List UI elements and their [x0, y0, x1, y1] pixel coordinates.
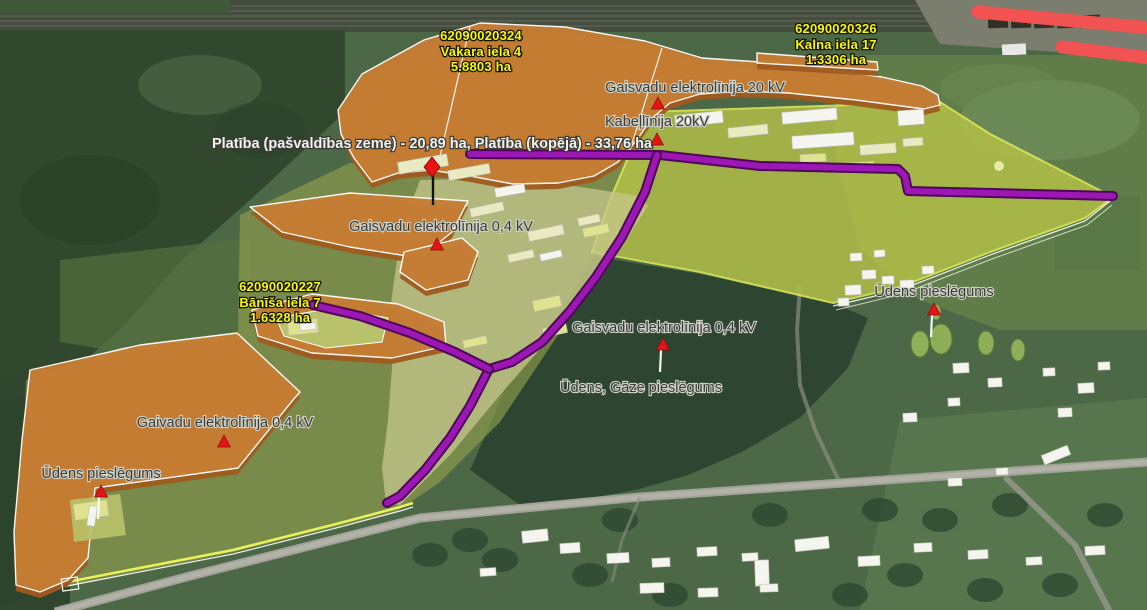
building: [922, 266, 934, 275]
label-udens-pieslegums-right: Ūdens pieslēgums: [874, 284, 993, 300]
tree-3d: [978, 331, 994, 355]
tree-cluster: [862, 498, 898, 522]
building: [858, 555, 880, 566]
tree-cluster: [922, 508, 958, 532]
tree-3d: [1011, 339, 1025, 361]
tree-3d: [911, 331, 929, 357]
building: [1058, 408, 1072, 418]
terrain-patch: [20, 155, 160, 245]
label-gaisvadu-04kv-1: Gaisvadu elektrolīnija 0,4 kV: [349, 219, 533, 235]
building: [1026, 557, 1042, 566]
marker-stem: [931, 315, 932, 337]
building: [521, 529, 548, 544]
building: [860, 143, 897, 155]
building: [988, 378, 1002, 388]
building: [903, 413, 917, 423]
terrain-patch: [940, 64, 1060, 112]
tree-cluster: [832, 583, 868, 607]
building: [652, 558, 670, 568]
label-platiba: Platība (pašvaldības zeme) - 20,89 ha, P…: [212, 136, 653, 152]
parcel-label-62090020326-line-2: Kalna iela 17: [795, 37, 876, 52]
map-viewport[interactable]: Gaisvadu elektrolīnija 20 kVKabeļlīnija …: [0, 0, 1147, 610]
parcel-label-62090020326-line-1: 62090020326: [795, 21, 877, 36]
map-canvas[interactable]: Gaisvadu elektrolīnija 20 kVKabeļlīnija …: [0, 0, 1147, 610]
label-kabellinija-20kv: Kabeļlīnija 20kV: [605, 114, 709, 130]
building: [1043, 368, 1055, 377]
building: [948, 398, 960, 407]
building: [845, 285, 862, 296]
building: [898, 109, 925, 126]
label-udens-gaze-pieslegums: Ūdens, Gāze pieslēgums: [560, 380, 722, 396]
parcel-label-62090020324-line-1: 62090020324: [440, 28, 522, 43]
tree-cluster: [967, 578, 1003, 602]
building: [640, 583, 664, 594]
building: [1078, 383, 1095, 394]
building: [755, 560, 770, 586]
building: [862, 270, 876, 280]
parcel-label-62090020324-line-2: Vakara iela 4: [441, 44, 522, 59]
building: [953, 363, 970, 374]
tree-3d: [930, 324, 952, 354]
tree-cluster: [412, 543, 448, 567]
label-gaisvadu-20kv: Gaisvadu elektrolīnija 20 kV: [605, 80, 785, 96]
marker-stem: [660, 350, 661, 372]
building: [914, 543, 932, 553]
building: [1085, 545, 1105, 555]
building: [560, 542, 581, 553]
building: [948, 478, 962, 487]
parcel-label-62090020227-line-1: 62090020227: [239, 279, 321, 294]
tree-cluster: [452, 528, 488, 552]
tree-cluster: [887, 563, 923, 587]
label-udens-pieslegums-left: Ūdens pieslēgums: [41, 466, 160, 482]
building: [994, 161, 1004, 171]
tree-cluster: [1087, 503, 1123, 527]
rail-wagon-white: [1002, 43, 1027, 55]
building: [1098, 362, 1110, 371]
tree-cluster: [572, 563, 608, 587]
label-gaivadu-04kv: Gaivadu elektrolīnija 0,4 kV: [137, 415, 314, 431]
parcel-label-62090020324-line-3: 5.8803 ha: [451, 59, 512, 74]
building: [838, 298, 849, 307]
building: [968, 549, 988, 559]
parcel-label-62090020326-line-3: 1.3306 ha: [806, 52, 867, 67]
marker-stem: [98, 497, 99, 519]
building: [874, 250, 885, 258]
tree-cluster: [752, 503, 788, 527]
terrain-patch: [0, 0, 230, 13]
label-gaisvadu-04kv-2: Gaisvadu elektrolīnija 0,4 kV: [572, 320, 756, 336]
building: [800, 153, 826, 162]
parcel-label-62090020227-line-3: 1.6328 ha: [250, 310, 311, 325]
building: [760, 584, 778, 593]
building: [480, 567, 497, 576]
tree-cluster: [1042, 573, 1078, 597]
parcel-label-62090020227-line-2: Bānīša iela 7: [239, 295, 320, 310]
building: [850, 253, 862, 262]
building: [903, 137, 924, 146]
building: [697, 546, 717, 556]
building: [996, 468, 1008, 476]
building: [698, 588, 718, 598]
building: [607, 552, 629, 563]
